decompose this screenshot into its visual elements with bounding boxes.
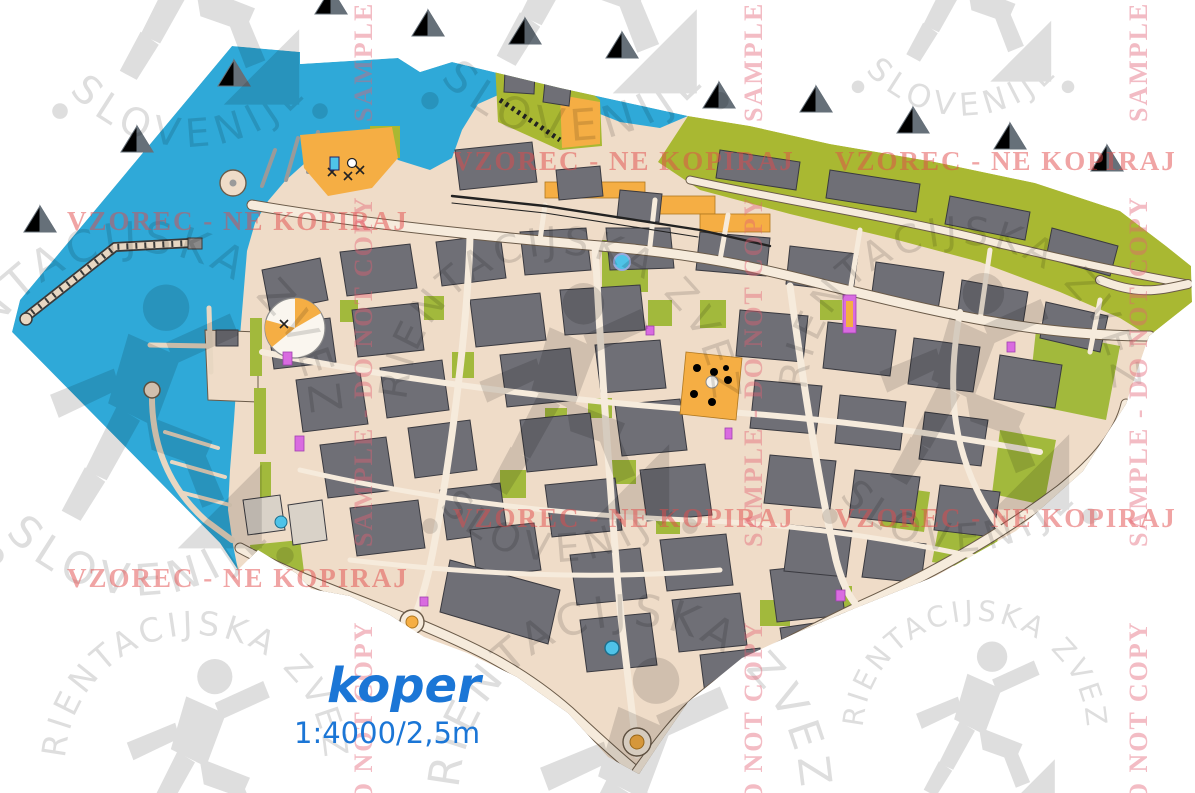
north-arrow-icon — [994, 123, 1026, 149]
fountain — [605, 641, 619, 655]
logo-watermark — [811, 0, 1115, 132]
logo-watermark — [837, 594, 1114, 793]
map-scale: 1:4000/2,5m — [294, 716, 480, 750]
pool — [275, 516, 287, 528]
north-arrow-icon — [315, 0, 347, 14]
map-title: koper — [327, 658, 481, 714]
north-arrow-icon — [412, 10, 444, 36]
logo-watermark — [34, 603, 356, 793]
north-arrow-icon — [800, 86, 832, 112]
map-page: ORIENTACIJSKA ZVEZA SLOVENIJE — [0, 0, 1195, 793]
north-arrow-icon — [1091, 145, 1123, 171]
orienteering-map-image: ORIENTACIJSKA ZVEZA SLOVENIJE — [0, 0, 1195, 793]
north-arrow-icon — [24, 206, 56, 232]
